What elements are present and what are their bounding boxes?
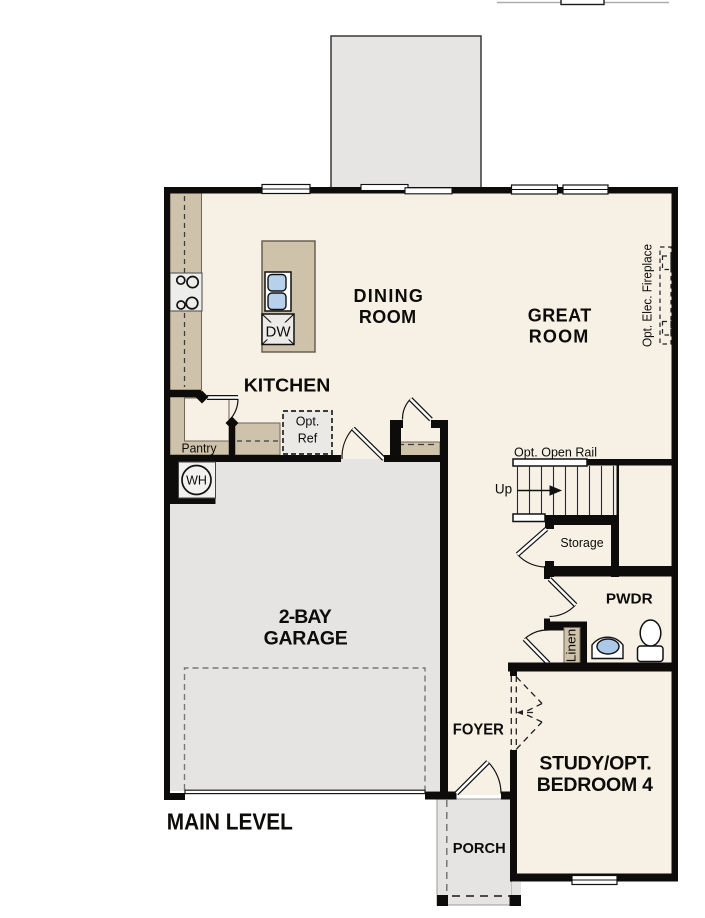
svg-text:KITCHEN: KITCHEN	[244, 375, 331, 396]
svg-text:ROOM: ROOM	[359, 307, 416, 327]
svg-text:GARAGE: GARAGE	[264, 628, 348, 650]
svg-text:Ref: Ref	[298, 432, 318, 446]
svg-text:Linen: Linen	[565, 629, 579, 663]
svg-text:DINING: DINING	[353, 286, 423, 306]
svg-text:ROOM: ROOM	[529, 327, 589, 347]
svg-text:2-BAY: 2-BAY	[279, 606, 332, 628]
svg-text:Opt. Open Rail: Opt. Open Rail	[514, 446, 597, 460]
svg-text:STUDY/OPT.: STUDY/OPT.	[539, 753, 651, 775]
svg-text:WH: WH	[186, 474, 207, 488]
svg-text:MAIN LEVEL: MAIN LEVEL	[167, 809, 293, 835]
svg-text:DW: DW	[266, 324, 292, 341]
svg-text:FOYER: FOYER	[453, 722, 504, 739]
svg-text:Storage: Storage	[560, 536, 603, 550]
svg-text:Pantry: Pantry	[182, 441, 217, 456]
svg-text:GREAT: GREAT	[528, 306, 592, 326]
svg-text:BEDROOM 4: BEDROOM 4	[537, 774, 653, 796]
svg-text:PORCH: PORCH	[453, 840, 506, 857]
svg-text:Opt.: Opt.	[296, 415, 320, 429]
svg-text:PWDR: PWDR	[606, 591, 653, 608]
svg-text:Up: Up	[495, 482, 512, 497]
svg-text:Opt. Elec. Fireplace: Opt. Elec. Fireplace	[641, 244, 655, 347]
